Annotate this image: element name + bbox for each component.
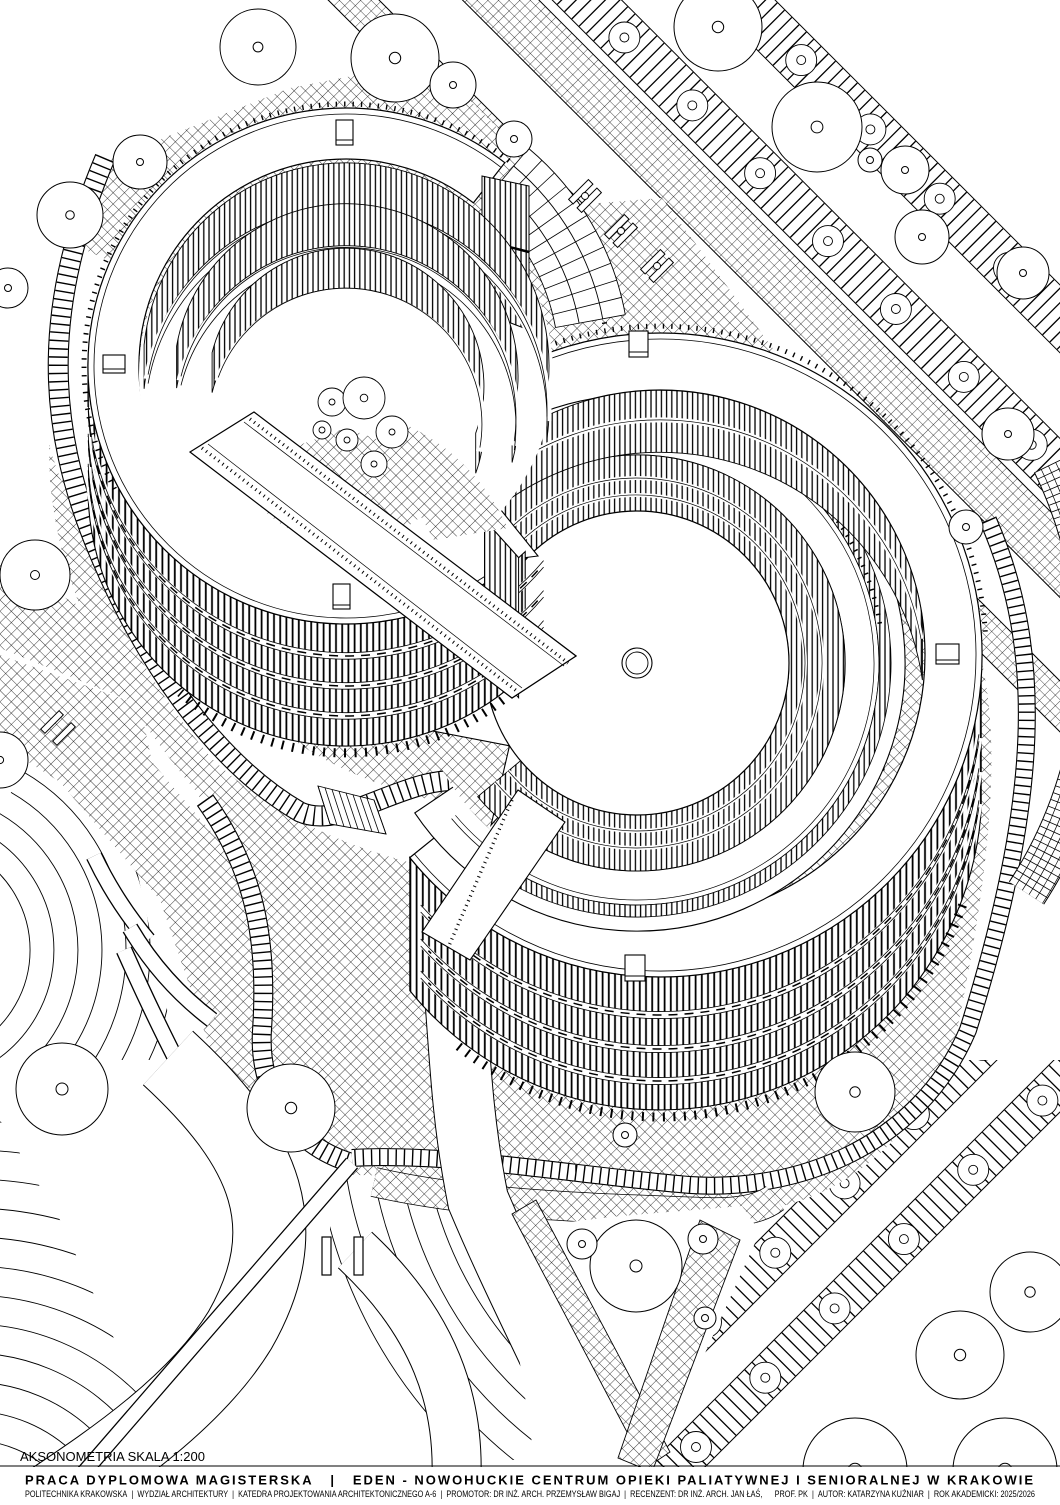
svg-text:POLITECHNIKA KRAKOWSKA | WYD: POLITECHNIKA KRAKOWSKA | WYDZIAŁ ARCHITE…	[25, 1488, 1035, 1499]
svg-text:AKSONOMETRIA SKALA 1:200: AKSONOMETRIA SKALA 1:200	[20, 1449, 205, 1464]
svg-text:PRACA DYPLOMOWA MAGISTERSKA: PRACA DYPLOMOWA MAGISTERSKA | EDEN - NOW…	[25, 1473, 1035, 1488]
